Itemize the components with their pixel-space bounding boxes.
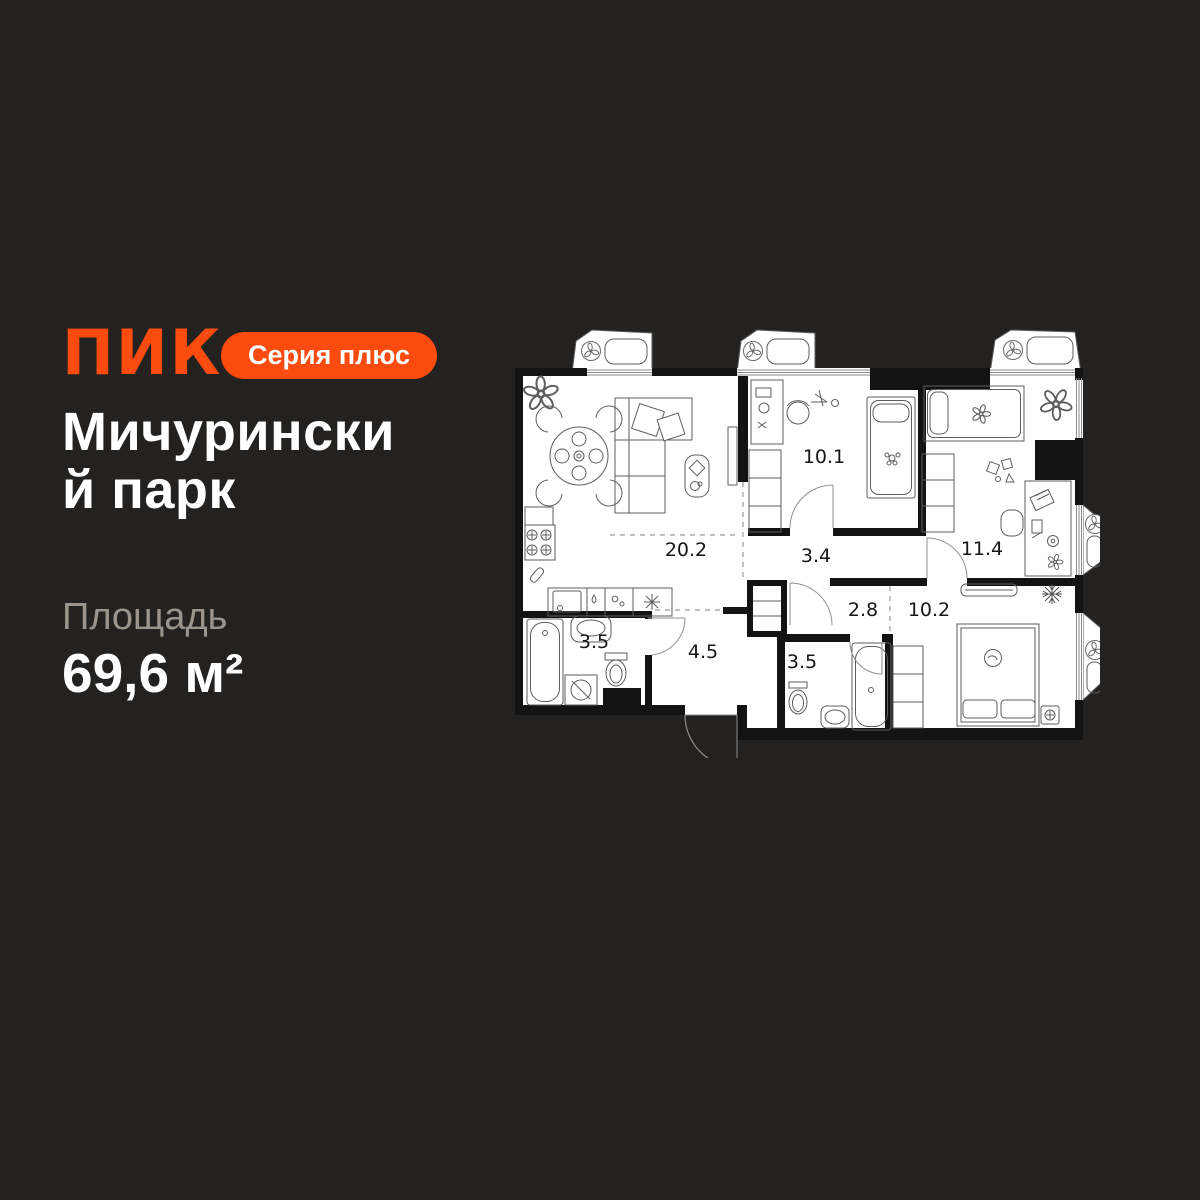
fridge-icon bbox=[644, 594, 660, 610]
project-title: Мичурински й парк bbox=[62, 403, 492, 519]
project-title-line1: Мичурински bbox=[62, 403, 492, 461]
listing-card[interactable]: ПИК Серия плюс Мичурински й парк Площадь… bbox=[0, 0, 1200, 1200]
floor-plan-svg: 20.2 10.1 3.4 11.4 2.8 10.2 3.5 4.5 3.5 bbox=[515, 328, 1100, 758]
room-label-living: 20.2 bbox=[665, 539, 707, 561]
area-value: 69,6 м² bbox=[62, 641, 243, 705]
project-title-line2: й парк bbox=[62, 461, 492, 519]
room-label-bedroom2: 10.2 bbox=[908, 599, 950, 621]
room-label-children: 11.4 bbox=[961, 538, 1003, 560]
room-label-bathroom1: 3.5 bbox=[579, 631, 609, 653]
pik-logo: ПИК bbox=[62, 322, 222, 384]
room-label-corridor: 2.8 bbox=[848, 599, 878, 621]
entry-door-swing bbox=[685, 715, 737, 758]
entry-door bbox=[685, 715, 737, 758]
series-badge: Серия плюс bbox=[221, 332, 437, 379]
floor-plan: 20.2 10.1 3.4 11.4 2.8 10.2 3.5 4.5 3.5 bbox=[515, 328, 1100, 758]
room-label-hallway: 3.4 bbox=[801, 545, 831, 567]
room-label-bedroom1: 10.1 bbox=[803, 446, 845, 468]
room-label-bathroom2: 3.5 bbox=[787, 651, 817, 673]
hall-closet bbox=[753, 586, 781, 631]
area-label: Площадь bbox=[62, 596, 227, 639]
room-label-hall: 4.5 bbox=[688, 641, 718, 663]
